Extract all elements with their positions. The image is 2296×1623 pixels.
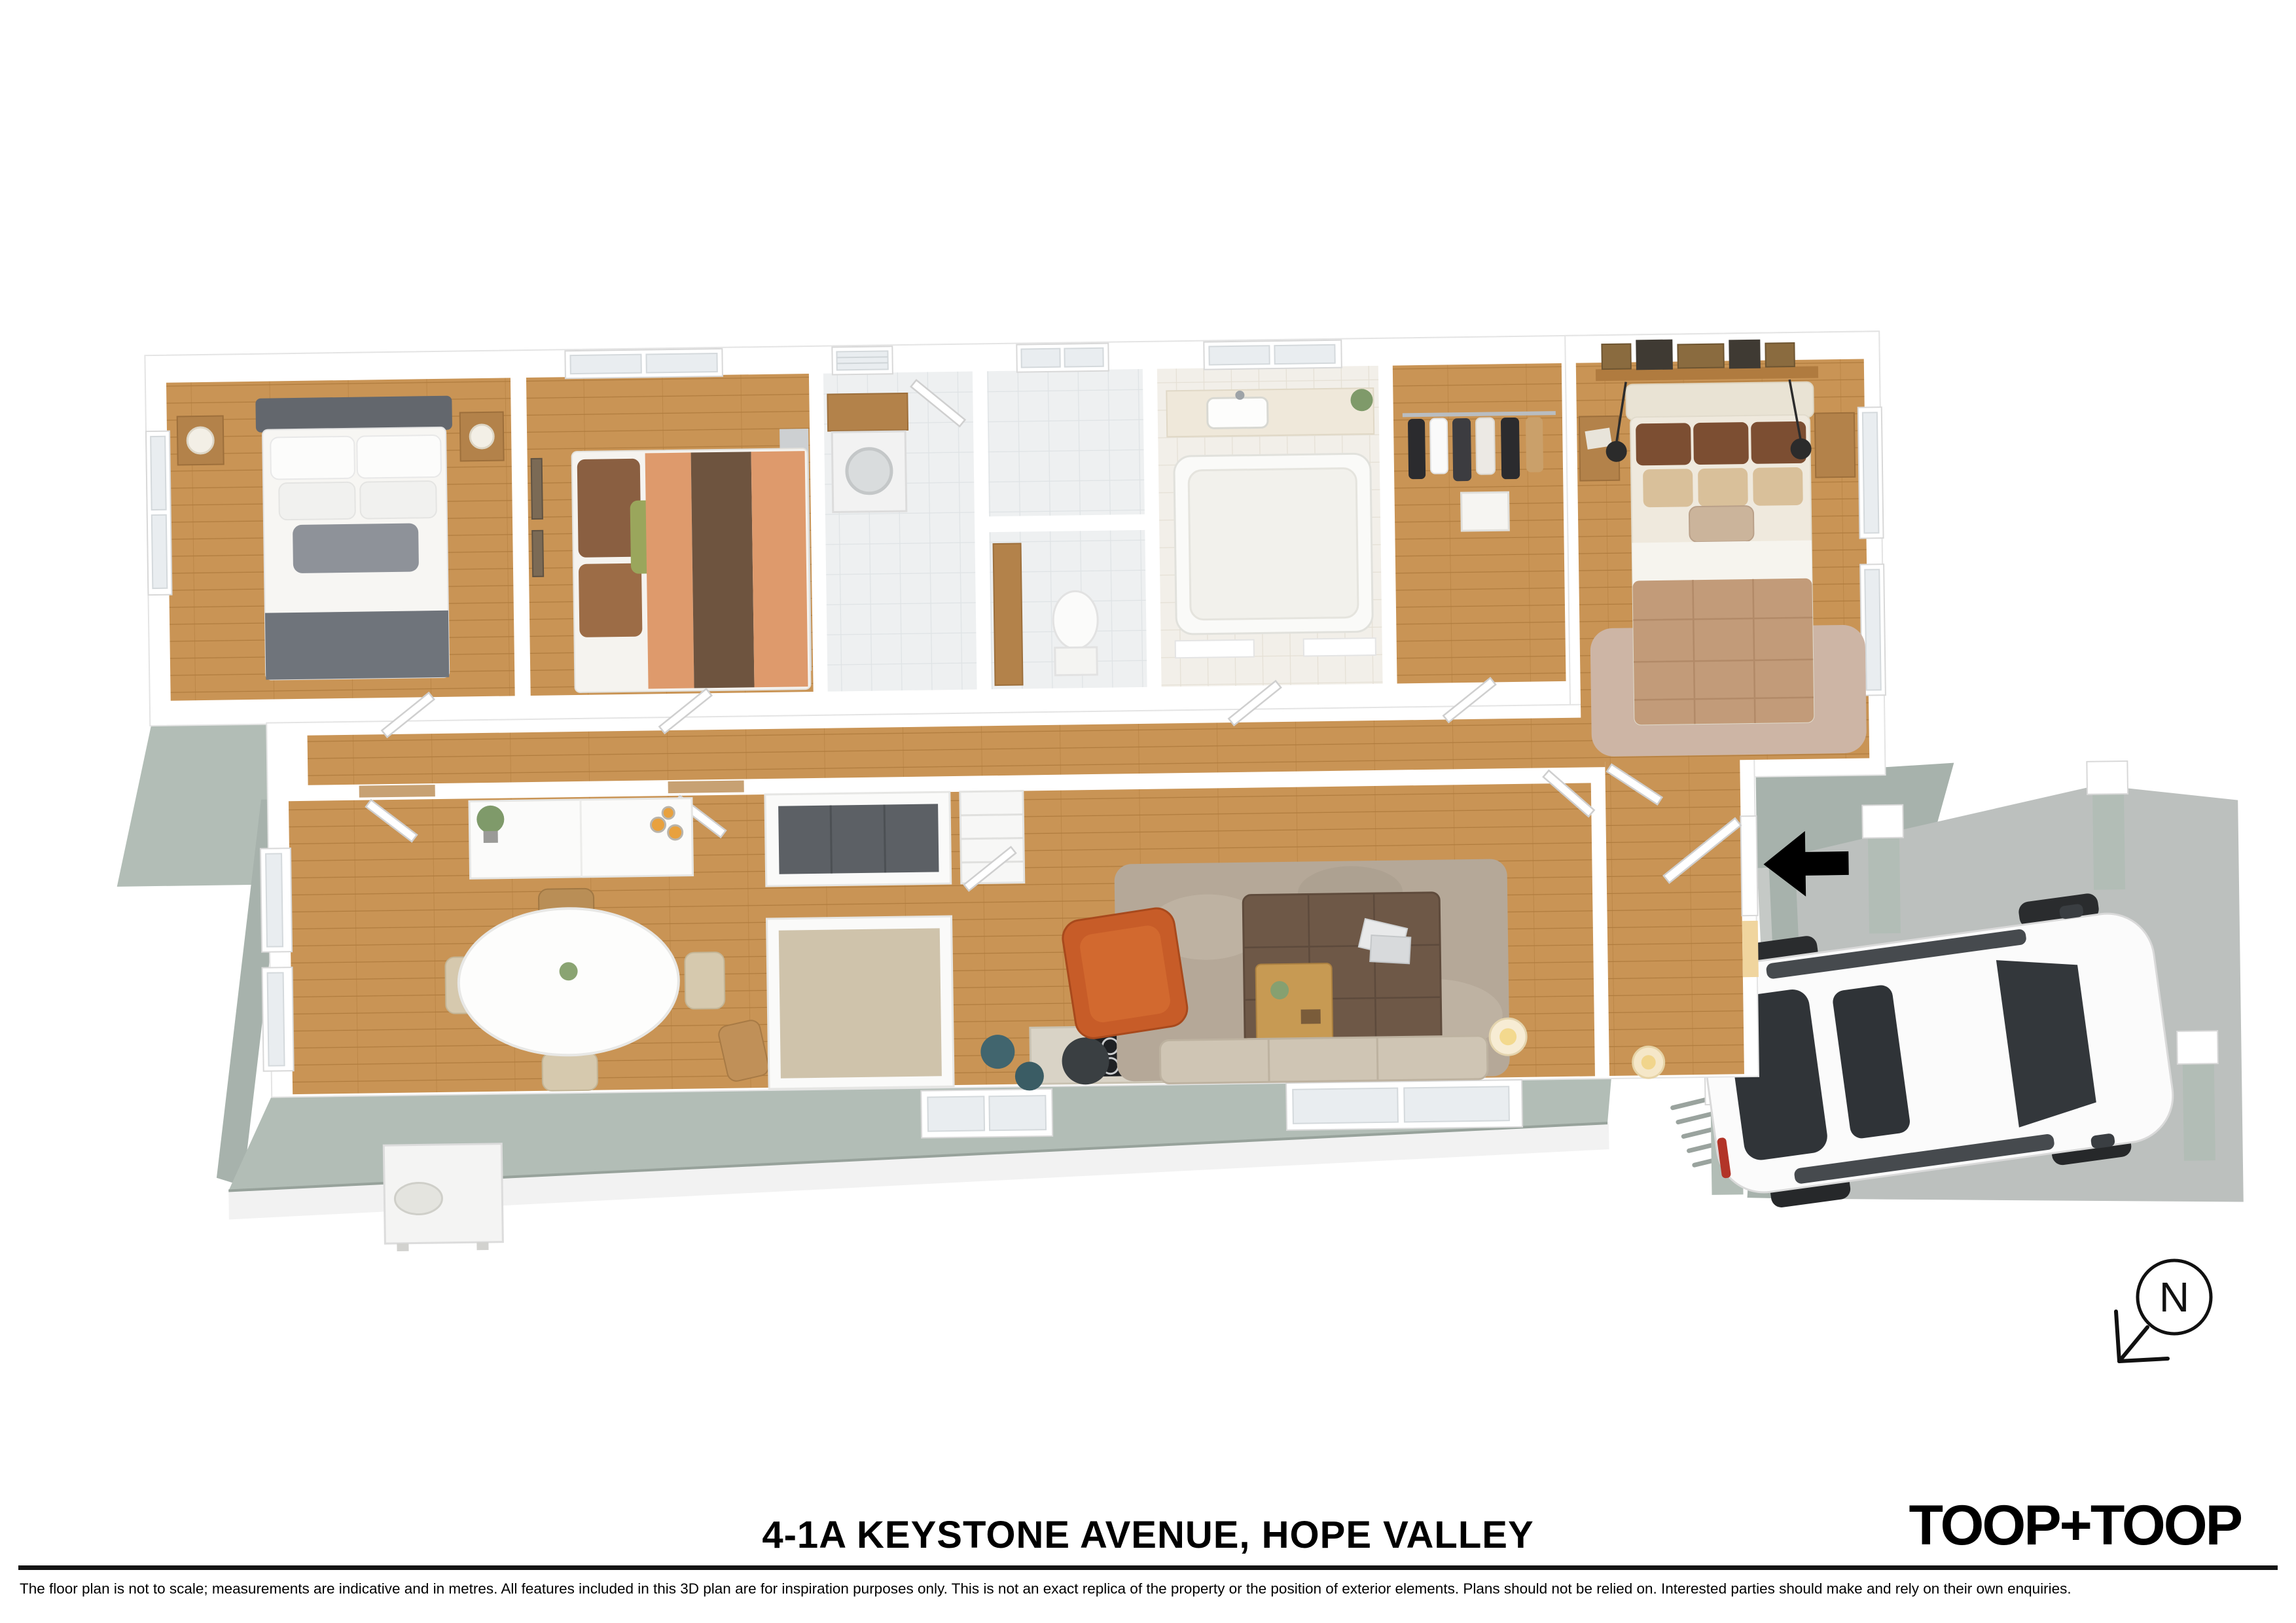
duvet-stripe — [691, 452, 755, 688]
window-glass — [927, 1096, 984, 1131]
photo-frame — [1765, 343, 1794, 367]
dining-chair — [542, 1052, 598, 1091]
garment — [1430, 418, 1448, 473]
bed-headboard — [1626, 382, 1814, 420]
pillow — [360, 481, 437, 519]
basin — [1207, 397, 1268, 428]
window-glass — [1404, 1086, 1509, 1122]
compass-arrow-arm — [2116, 1311, 2119, 1361]
vanity-counter — [1166, 388, 1374, 437]
orange-armchair — [1060, 906, 1190, 1041]
compass-arrow-shaft — [2119, 1327, 2147, 1361]
garment — [1476, 418, 1495, 474]
shower-nib-wall — [1175, 640, 1254, 658]
window-glass — [1021, 349, 1060, 368]
wc-window — [1016, 344, 1109, 372]
footer-divider — [18, 1565, 2278, 1570]
timber-tray — [1256, 963, 1333, 1050]
compass-north-label: N — [2159, 1274, 2189, 1321]
entry-floor — [1604, 715, 1744, 1076]
pillow-brown — [579, 563, 643, 637]
sofa — [1160, 1036, 1488, 1084]
ac-foot — [476, 1242, 488, 1250]
wc-top-floor — [987, 369, 1145, 516]
hanging-rail — [1403, 413, 1556, 415]
disclaimer-text: The floor plan is not to scale; measurem… — [20, 1580, 2278, 1597]
post-shaft — [1868, 835, 1901, 934]
washer-door — [846, 448, 891, 493]
fridge-top — [778, 804, 939, 874]
accent-pillow — [1689, 506, 1754, 542]
post-cap — [1862, 805, 1903, 838]
photo-frame — [1729, 340, 1761, 369]
window-glass — [570, 355, 641, 374]
bathroom — [1166, 388, 1377, 658]
toilet-bowl — [1053, 591, 1098, 649]
table-lamp — [187, 427, 214, 454]
laundry-louvre-window — [832, 346, 893, 374]
window-glass — [152, 515, 168, 588]
laundry-bench — [827, 393, 908, 431]
pillow — [279, 482, 355, 520]
wall-art — [532, 531, 543, 577]
post-shaft — [2183, 1062, 2215, 1161]
living-south-window — [1286, 1080, 1522, 1130]
bed-duvet — [1632, 579, 1814, 725]
armchair-cushion — [1078, 924, 1172, 1024]
toilet-tank — [1055, 647, 1098, 675]
window-glass — [151, 437, 166, 510]
bedroom-1-window — [146, 431, 171, 595]
dining-chair — [685, 952, 725, 1009]
door-threshold — [359, 785, 435, 798]
door-threshold — [668, 780, 744, 793]
front-door-frame — [1740, 816, 1757, 916]
table-lamp — [470, 425, 493, 448]
foot-blanket — [265, 611, 449, 680]
window-glass — [266, 853, 283, 946]
ac-foot — [397, 1243, 408, 1251]
pillow — [357, 435, 441, 478]
candle — [662, 807, 674, 819]
floorplan-canvas: N — [0, 0, 2296, 1623]
garment — [1501, 418, 1520, 479]
sidelight-glow — [1742, 921, 1759, 977]
magazine — [1370, 935, 1410, 963]
photo-frame — [1636, 340, 1673, 370]
garment — [1526, 417, 1543, 472]
window-glass — [1293, 1088, 1398, 1124]
garment — [1452, 418, 1471, 481]
ac-grille — [395, 1183, 442, 1215]
window-glass — [836, 351, 888, 370]
pillow-brown — [1636, 423, 1691, 465]
wc-vanity — [994, 544, 1023, 686]
window-glass — [989, 1096, 1046, 1130]
dining-table — [457, 907, 679, 1057]
air-conditioner-unit — [384, 1144, 503, 1251]
window-glass — [268, 972, 285, 1065]
floor-plan — [109, 327, 2244, 1255]
grey-cushions — [293, 523, 419, 573]
window-glass — [1274, 345, 1335, 364]
brand-wordmark: TOOP+TOOP — [1909, 1493, 2241, 1558]
candle — [668, 825, 682, 840]
photo-frame — [1602, 344, 1631, 369]
sideboard-divider — [581, 800, 582, 877]
north-compass: N — [2116, 1260, 2211, 1361]
kitchen-south-window — [921, 1089, 1052, 1138]
tray-decor — [1301, 1009, 1321, 1024]
post-cap — [2087, 761, 2128, 794]
plant-pot — [484, 831, 498, 843]
candle — [651, 817, 665, 832]
pillow-tan — [1698, 468, 1748, 507]
garment — [1408, 419, 1426, 479]
bathtub-inner — [1189, 468, 1358, 620]
window-glass — [1064, 348, 1103, 367]
compass-arrow-arm — [2119, 1359, 2168, 1361]
living-room — [1059, 859, 1527, 1085]
window-glass — [1209, 346, 1269, 365]
window-glass — [646, 353, 717, 373]
window-glass — [1863, 412, 1879, 533]
wall-art — [531, 459, 543, 519]
bedroom-2-window — [565, 349, 723, 378]
pillow-tan — [1753, 467, 1803, 506]
floorplan-page: N 4-1A KEYSTONE AVENUE, HOPE VALLEY TOOP… — [0, 0, 2296, 1623]
bathroom-window — [1204, 340, 1342, 370]
photo-frame — [1677, 344, 1723, 368]
storage-box — [1462, 492, 1509, 531]
post-shaft — [2092, 791, 2125, 890]
pillow-brown — [1693, 422, 1749, 465]
duvet-stripe — [645, 453, 694, 689]
stone-benchtop — [779, 928, 942, 1078]
post-cap — [2177, 1031, 2218, 1064]
shower-nib-wall — [1304, 638, 1376, 656]
bedside-table — [1815, 413, 1855, 478]
pillow-tan — [1643, 469, 1693, 507]
duvet-stripe — [751, 451, 808, 687]
window-glass — [1865, 569, 1881, 690]
pillow — [270, 437, 355, 480]
